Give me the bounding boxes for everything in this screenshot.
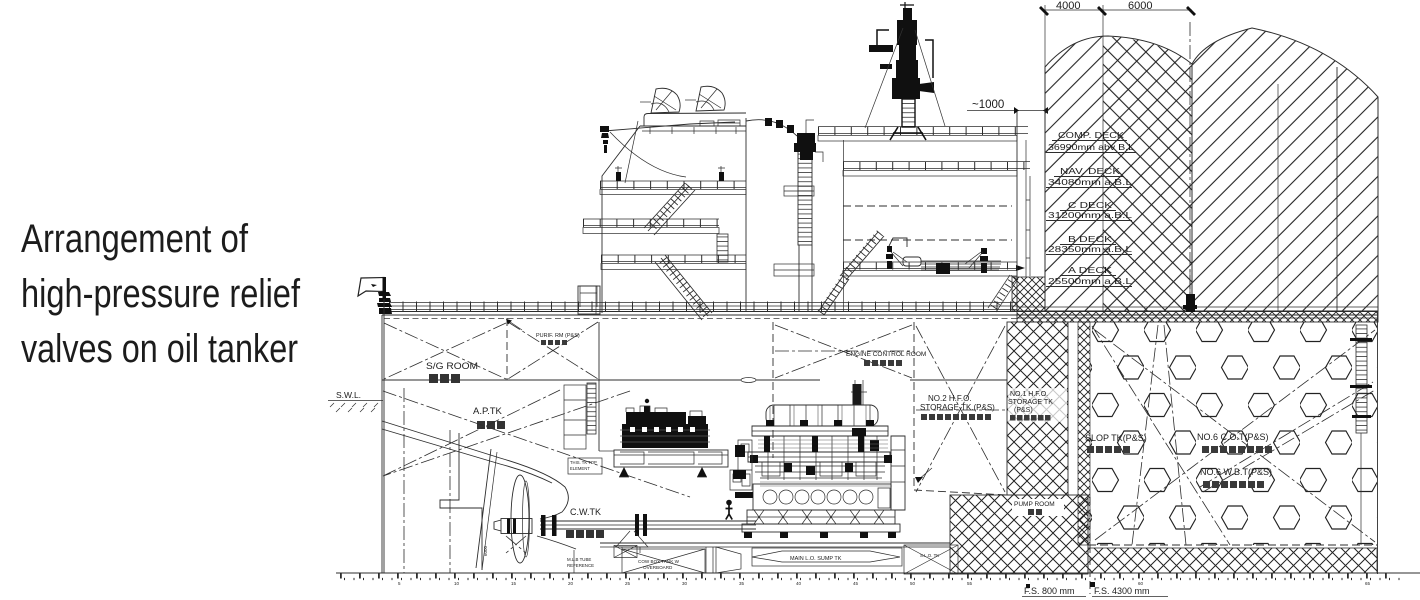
svg-text:15: 15 <box>511 581 517 586</box>
svg-text:6000: 6000 <box>483 545 488 556</box>
svg-text:A DECK: A DECK <box>1068 265 1112 275</box>
svg-text:COW BOX TANK W: COW BOX TANK W <box>638 559 680 564</box>
svg-text:S.W.L.: S.W.L. <box>336 390 361 400</box>
svg-text:NAV. DECK: NAV. DECK <box>1060 166 1120 176</box>
svg-text:A.P.TK: A.P.TK <box>473 406 503 417</box>
svg-text:STORAGE TK.(P&S): STORAGE TK.(P&S) <box>920 403 995 412</box>
svg-text:25500mm a.B.L: 25500mm a.B.L <box>1048 276 1132 286</box>
svg-text:45: 45 <box>853 581 859 586</box>
svg-text:PUMP ROOM: PUMP ROOM <box>1014 501 1055 508</box>
svg-text:~1000: ~1000 <box>972 99 1004 111</box>
svg-text:34080mm a.B.L: 34080mm a.B.L <box>1048 177 1132 187</box>
svg-text:THIS. TK TOP: THIS. TK TOP <box>570 460 597 465</box>
svg-text:55: 55 <box>967 581 973 586</box>
svg-text:NO.6 C.O.T(P&S): NO.6 C.O.T(P&S) <box>1197 432 1269 442</box>
svg-text:NO.2 H.F.O.: NO.2 H.F.O. <box>928 394 972 403</box>
svg-text:Arrangement of: Arrangement of <box>21 217 249 261</box>
svg-text:5: 5 <box>398 581 401 586</box>
svg-text:50: 50 <box>910 581 916 586</box>
svg-text:SLOP TK(P&S): SLOP TK(P&S) <box>1085 433 1147 443</box>
svg-text:F.S. 800 mm: F.S. 800 mm <box>1024 586 1075 596</box>
svg-text:36990mm abv B.L: 36990mm abv B.L <box>1048 142 1134 152</box>
svg-text:ENGINE CONTROL ROOM: ENGINE CONTROL ROOM <box>846 351 926 358</box>
svg-text:C.W.TK: C.W.TK <box>570 507 601 517</box>
svg-text:ELEMENT: ELEMENT <box>570 466 590 471</box>
svg-text:S.L.O. TK: S.L.O. TK <box>920 553 939 558</box>
svg-text:high-pressure relief: high-pressure relief <box>21 272 301 316</box>
svg-text:28350mm a.B.L: 28350mm a.B.L <box>1048 244 1132 254</box>
svg-text:(P&S): (P&S) <box>1014 407 1033 414</box>
svg-text:F.S. 4300 mm: F.S. 4300 mm <box>1094 586 1150 596</box>
svg-text:OVERBOARD: OVERBOARD <box>643 565 673 570</box>
svg-text:M.L.B TUBE: M.L.B TUBE <box>567 557 591 562</box>
svg-text:35: 35 <box>739 581 745 586</box>
svg-text:10: 10 <box>454 581 460 586</box>
svg-text:25: 25 <box>625 581 631 586</box>
svg-text:PURIF. RM (P&S): PURIF. RM (P&S) <box>536 333 580 339</box>
svg-text:30: 30 <box>682 581 688 586</box>
svg-text:MAIN L.O. SUMP TK: MAIN L.O. SUMP TK <box>790 556 842 562</box>
svg-text:STORAGE TK: STORAGE TK <box>1008 399 1053 406</box>
svg-text:65: 65 <box>1365 581 1371 586</box>
svg-text:NO.1 H.F.O.: NO.1 H.F.O. <box>1010 391 1048 398</box>
svg-text:40: 40 <box>796 581 802 586</box>
svg-text:4000: 4000 <box>1056 0 1080 12</box>
svg-text:B DECK: B DECK <box>1068 234 1112 244</box>
svg-text:NO.6 W.B.T(P&S): NO.6 W.B.T(P&S) <box>1200 467 1272 477</box>
svg-text:6000: 6000 <box>1128 0 1152 12</box>
svg-text:COMP. DECK: COMP. DECK <box>1058 130 1124 140</box>
svg-text:C DECK: C DECK <box>1068 200 1112 210</box>
svg-text:31200mm a.B.L: 31200mm a.B.L <box>1048 210 1132 220</box>
svg-text:20: 20 <box>568 581 574 586</box>
svg-text:valves on oil tanker: valves on oil tanker <box>21 327 298 371</box>
svg-text:REFERENCE: REFERENCE <box>567 563 594 568</box>
